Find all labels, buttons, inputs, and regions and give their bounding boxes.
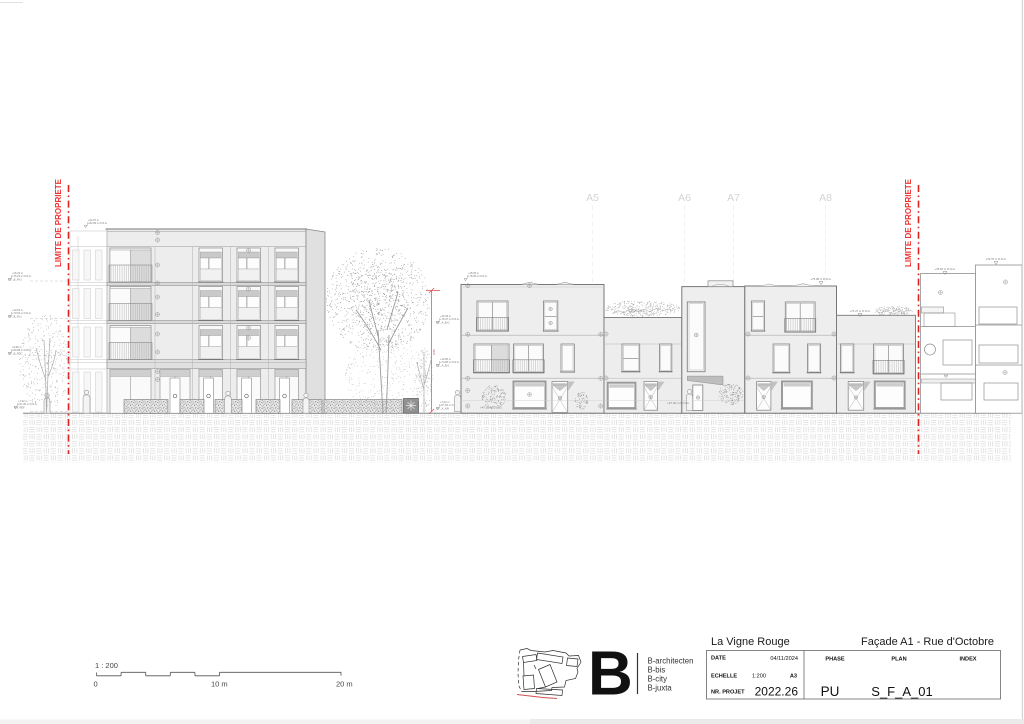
svg-text:+69.98 m D.N.G.: +69.98 m D.N.G. xyxy=(12,348,32,352)
svg-text:0: 0 xyxy=(94,680,98,689)
svg-text:+72.86 m D.N.G.: +72.86 m D.N.G. xyxy=(440,360,460,364)
svg-text:+76.23 m D.N.G.: +76.23 m D.N.G. xyxy=(12,274,32,278)
svg-text:A3: A3 xyxy=(790,674,797,680)
svg-text:+47.30 m D.N.G.: +47.30 m D.N.G. xyxy=(667,401,690,405)
svg-text:S_F_A_01: S_F_A_01 xyxy=(871,684,932,699)
svg-text:20 m: 20 m xyxy=(336,680,353,689)
svg-text:A7: A7 xyxy=(727,192,740,204)
svg-text:2022.26: 2022.26 xyxy=(755,685,799,699)
svg-text:04/11/2024: 04/11/2024 xyxy=(770,656,798,662)
svg-text:+75.08 m D.N.G.: +75.08 m D.N.G. xyxy=(810,277,831,281)
svg-text:+67.30 m D.N.G.: +67.30 m D.N.G. xyxy=(18,402,38,406)
svg-text:9.80: 9.80 xyxy=(432,349,436,355)
svg-text:B-architecten: B-architecten xyxy=(648,657,694,666)
svg-text:Façade A1 - Rue d'Octobre: Façade A1 - Rue d'Octobre xyxy=(861,636,994,648)
svg-text:A8: A8 xyxy=(819,192,832,204)
svg-text:+73.63 m D.N.G.: +73.63 m D.N.G. xyxy=(12,311,32,315)
svg-text:PLAN: PLAN xyxy=(891,657,906,663)
svg-text:1:200: 1:200 xyxy=(752,674,766,680)
svg-text:B-bis: B-bis xyxy=(648,666,666,675)
svg-text:A5: A5 xyxy=(586,192,599,204)
svg-text:NR. PROJET: NR. PROJET xyxy=(711,690,745,696)
svg-text:La Vigne Rouge: La Vigne Rouge xyxy=(711,636,790,648)
svg-text:+79.76 m D.N.G.: +79.76 m D.N.G. xyxy=(985,257,1006,261)
svg-text:+75.42 m D.N.G.: +75.42 m D.N.G. xyxy=(626,309,646,313)
svg-text:+78.84 m D.N.G.: +78.84 m D.N.G. xyxy=(934,267,955,271)
svg-text:LIMITE DE PROPRIETE: LIMITE DE PROPRIETE xyxy=(54,178,63,267)
svg-text:PU: PU xyxy=(821,684,840,699)
svg-text:1 : 200: 1 : 200 xyxy=(95,661,118,670)
svg-text:+73.47 m D.N.G.: +73.47 m D.N.G. xyxy=(849,309,870,313)
svg-text:+78.36 m D.N.G.: +78.36 m D.N.G. xyxy=(468,274,488,278)
svg-text:+82.99 m D.N.G.: +82.99 m D.N.G. xyxy=(88,221,108,225)
svg-text:INDEX: INDEX xyxy=(959,657,976,663)
svg-text:ECHELLE: ECHELLE xyxy=(711,674,737,680)
svg-text:DATE: DATE xyxy=(711,656,726,662)
svg-text:B-juxta: B-juxta xyxy=(648,684,673,693)
svg-text:B: B xyxy=(588,640,633,709)
svg-text:LIMITE DE PROPRIETE: LIMITE DE PROPRIETE xyxy=(904,178,913,267)
svg-text:B-city: B-city xyxy=(648,675,668,684)
svg-text:10 m: 10 m xyxy=(211,680,228,689)
svg-text:+76.37 m D.N.G.: +76.37 m D.N.G. xyxy=(440,317,460,321)
svg-text:NIV. REF: NIV. REF xyxy=(14,406,25,410)
svg-text:A6: A6 xyxy=(678,192,691,204)
svg-text:+47.02 M D.N.G.: +47.02 M D.N.G. xyxy=(480,406,503,410)
svg-text:PHASE: PHASE xyxy=(825,657,845,663)
